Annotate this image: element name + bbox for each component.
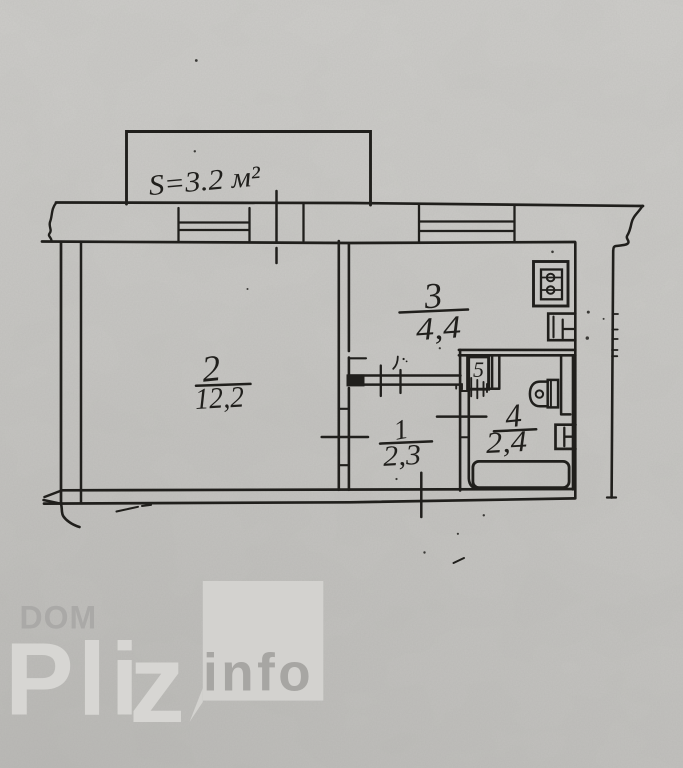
svg-text:4,4: 4,4 xyxy=(415,308,462,347)
svg-text:info: info xyxy=(203,644,314,703)
svg-text:5: 5 xyxy=(473,357,484,382)
svg-text:z: z xyxy=(129,621,185,746)
svg-text:Pli: Pli xyxy=(5,622,143,737)
